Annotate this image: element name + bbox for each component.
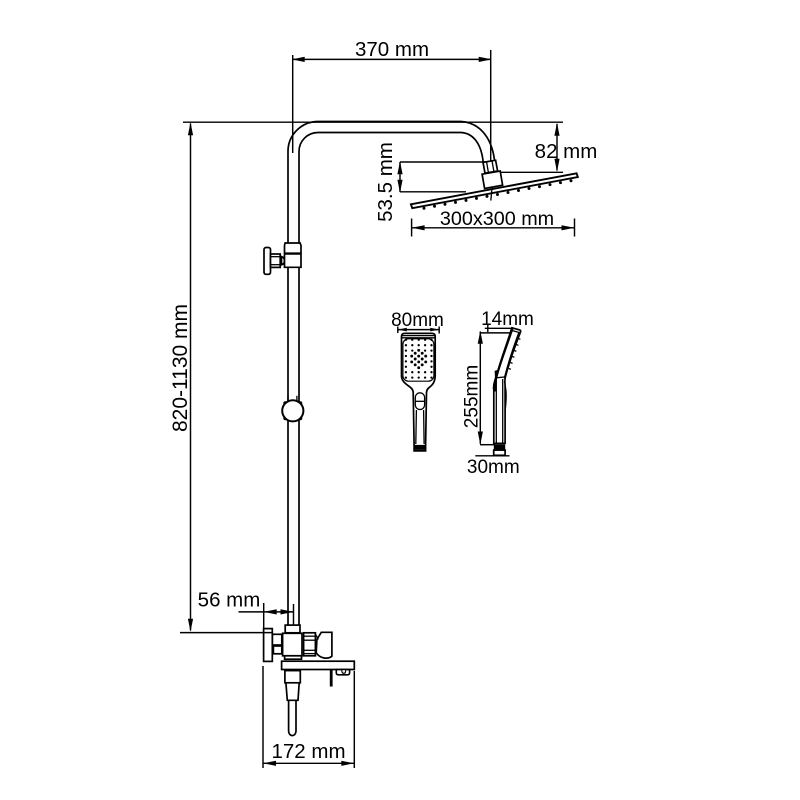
svg-text:370 mm: 370 mm — [355, 38, 429, 61]
svg-text:56 mm: 56 mm — [198, 589, 261, 612]
svg-text:820-1130 mm: 820-1130 mm — [169, 304, 192, 432]
svg-text:14mm: 14mm — [481, 309, 534, 330]
svg-text:30mm: 30mm — [467, 457, 520, 478]
svg-text:300x300 mm: 300x300 mm — [440, 208, 554, 230]
svg-text:80mm: 80mm — [391, 310, 444, 331]
svg-text:82 mm: 82 mm — [535, 140, 598, 163]
svg-text:172 mm: 172 mm — [271, 740, 345, 763]
svg-text:255mm: 255mm — [462, 365, 483, 428]
svg-text:53.5 mm: 53.5 mm — [374, 142, 397, 222]
